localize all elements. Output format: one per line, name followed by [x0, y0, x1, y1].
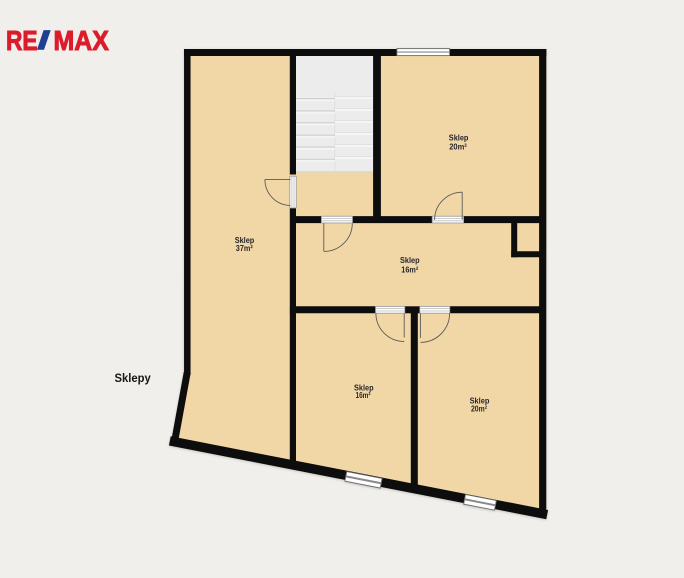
svg-text:Sklep: Sklep: [449, 133, 469, 142]
svg-text:16m²: 16m²: [401, 266, 418, 275]
svg-text:RE: RE: [6, 25, 38, 56]
svg-text:Sklepy: Sklepy: [115, 372, 152, 385]
svg-text:37m²: 37m²: [236, 244, 253, 253]
svg-text:16m²: 16m²: [356, 391, 371, 400]
svg-text:20m²: 20m²: [471, 404, 487, 413]
svg-text:MAX: MAX: [54, 25, 110, 56]
svg-text:Sklep: Sklep: [400, 256, 420, 265]
svg-text:20m²: 20m²: [449, 143, 467, 152]
